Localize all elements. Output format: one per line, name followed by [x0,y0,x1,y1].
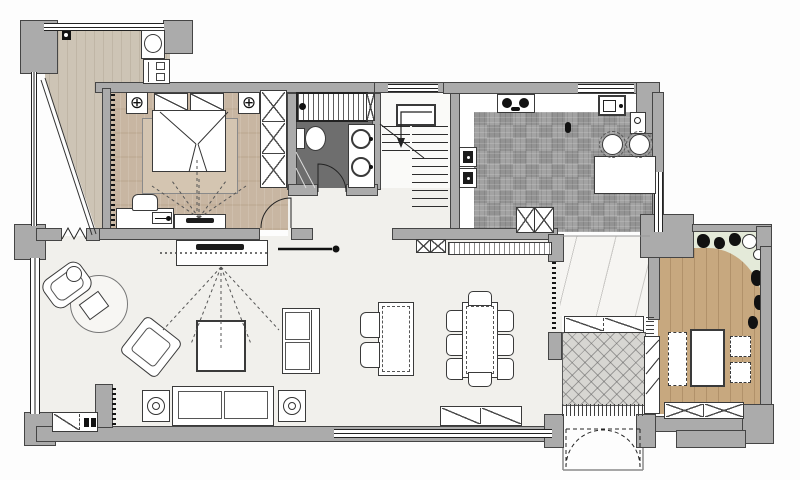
column [163,20,193,54]
dining-chair [446,310,463,332]
study-bench [668,332,687,386]
track-symbol [552,262,556,332]
plant-icon [714,237,725,249]
dining-window [334,429,552,438]
dining-chair [497,310,514,332]
foyer-partition-cabinet [644,336,660,414]
exterior-wall-line [31,72,37,226]
living-window [30,258,40,414]
bar-stool [629,134,650,155]
shoe-cabinet [52,412,98,432]
sideboard [440,406,522,426]
plant-icon [729,233,741,246]
bedroom-left-wall [102,88,111,232]
foyer-floor [562,332,646,406]
side-table-lamp [142,390,170,422]
bedroom-tv [186,218,214,223]
dining-table [462,302,498,378]
plant-icon [697,234,710,248]
dining-chair [497,334,514,356]
stair-treads [412,126,448,210]
balcony-living-wall [86,228,100,241]
ceiling-lamp-icon: ⊕ [126,92,148,114]
tub-faucet [299,103,306,110]
doormat [564,316,644,333]
floor-cushion [730,336,751,357]
vanity-sink [351,157,371,177]
foyer-mat-fringe [562,404,646,416]
console-chair [360,342,380,368]
coffee-table [196,320,246,372]
foyer-border [646,316,654,338]
porch-step-wall [676,430,746,448]
stair-landing [396,104,436,126]
floor-cushion [730,362,751,383]
hall-cabinet-x [416,239,446,253]
window-seat [664,402,744,419]
dining-chair [446,358,463,380]
toilet-tank [296,128,305,149]
counter-faucet [565,122,571,133]
storage-cabinet [143,59,170,84]
curtain-symbol [111,94,115,226]
side-table-lamp [278,390,306,422]
built-in-oven [459,147,477,167]
console-chair [360,312,380,338]
curtain-symbol [112,388,116,426]
stairs-window [388,84,438,92]
bathtub [296,92,368,122]
built-in-dishwasher [459,168,477,188]
balcony-living-wall [36,228,62,241]
small-appliance [630,112,646,134]
double-bed [152,110,226,172]
sink-faucet [369,137,373,141]
floor-plan: ⊕ ⊕ [0,0,800,480]
ceiling-lamp-icon: ⊕ [238,92,260,114]
sink-faucet [369,165,373,169]
kitchen-window [578,84,634,93]
gas-hob [497,94,535,113]
wardrobe [260,90,287,188]
bedroom-bottom-wall [97,228,260,240]
kitchen-island [594,156,656,194]
bed-pillow [190,93,224,111]
side-table-round [66,266,82,282]
sofa [172,386,274,426]
living-tv [196,244,244,250]
bar-stool [602,134,623,155]
dining-chair [497,358,514,380]
dining-chair [468,291,492,306]
column [742,404,774,444]
study-right-wall [760,246,772,416]
stair-treads-upper [382,126,410,154]
tea-table [690,329,725,387]
hall-sideboard [448,242,552,255]
dining-chair [468,372,492,387]
loveseat [282,308,320,374]
bedroom-bottom-wall [291,228,313,240]
desk-chair [132,194,158,211]
bed-pillow [154,93,188,111]
desk-lamp [152,212,172,224]
plant-icon [748,316,758,329]
hall-left-wall [548,332,562,360]
entry-jamb [636,414,656,448]
kitchen-base-cabinet [516,207,554,233]
wash-basin [144,34,162,53]
bath-bottom-wall [288,184,318,196]
dining-chair [446,334,463,356]
console-table [378,302,414,376]
toilet-bowl [305,126,326,151]
kitchen-sink [598,95,626,116]
bath-shelf [366,93,375,121]
planter-pot [742,234,757,249]
block-wall [640,214,694,258]
hallway-floor [560,236,650,316]
floor-drain [62,31,71,40]
vanity-sink [351,129,371,149]
